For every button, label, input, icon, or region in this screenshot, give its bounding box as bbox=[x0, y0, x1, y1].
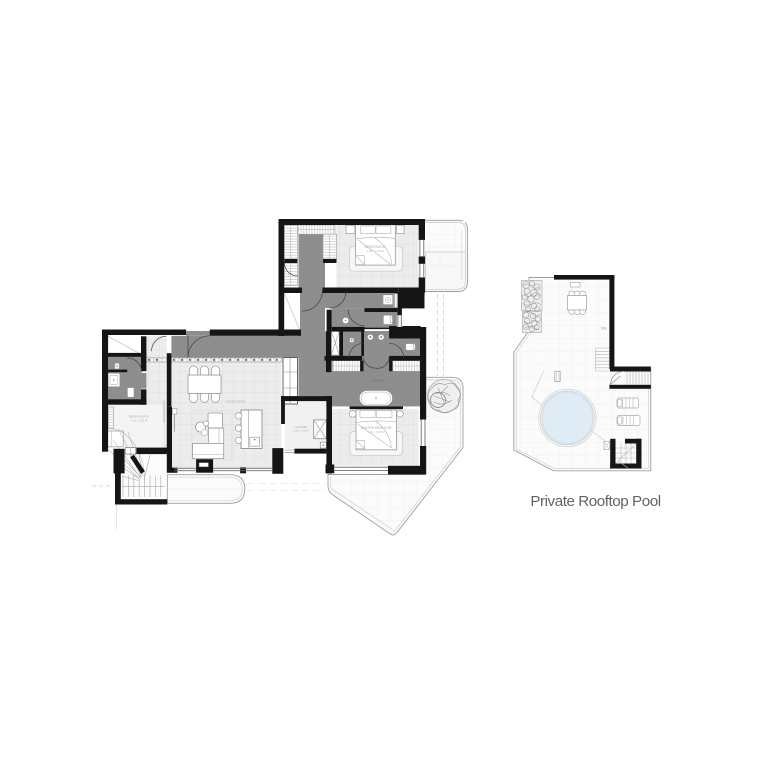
svg-text:3.40 x 2.90 M: 3.40 x 2.90 M bbox=[131, 419, 148, 423]
svg-text:1.90 x 1.60 M: 1.90 x 1.60 M bbox=[293, 430, 308, 433]
svg-text:4.00 x 3.20 M: 4.00 x 3.20 M bbox=[367, 249, 385, 253]
svg-text:Private Rooftop Pool: Private Rooftop Pool bbox=[530, 493, 660, 510]
svg-text:LIVING ROOM: LIVING ROOM bbox=[225, 400, 246, 404]
svg-text:LAUNDRY: LAUNDRY bbox=[294, 425, 307, 429]
svg-text:4.20 x 3.80 M: 4.20 x 3.80 M bbox=[368, 430, 386, 434]
svg-text:BEDROOM 03: BEDROOM 03 bbox=[129, 415, 149, 419]
svg-text:DN: DN bbox=[601, 327, 607, 331]
svg-text:DRESSING: DRESSING bbox=[371, 379, 386, 383]
